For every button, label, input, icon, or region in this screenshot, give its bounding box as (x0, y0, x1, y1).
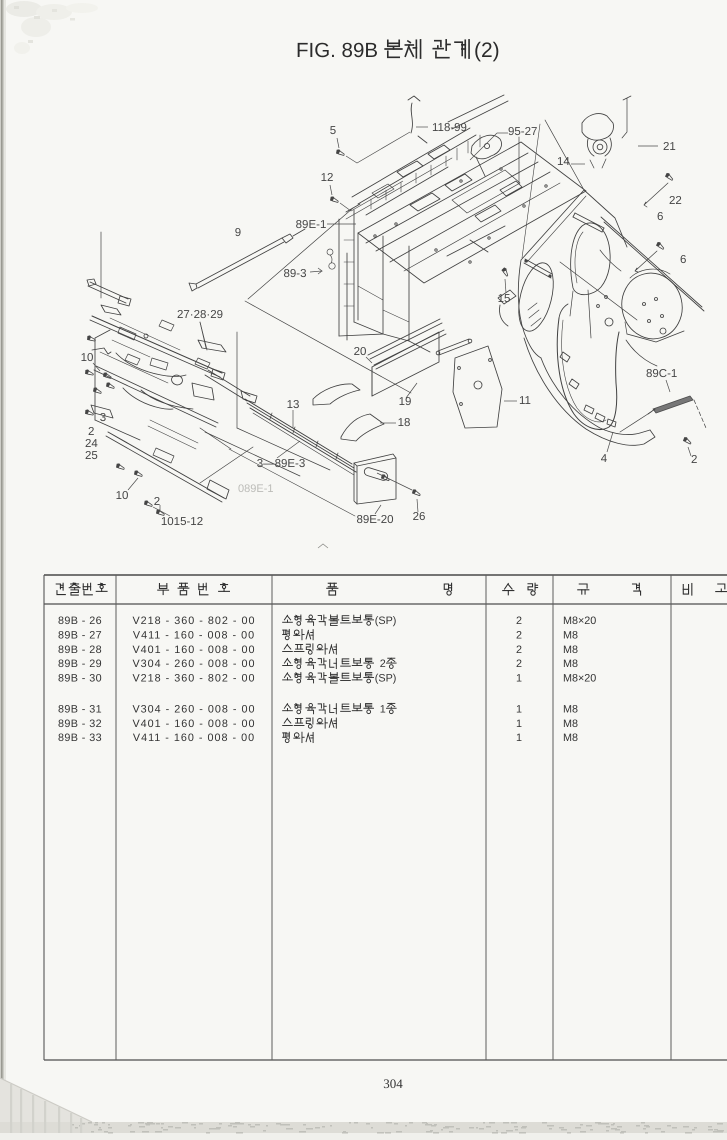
svg-text:10: 10 (116, 490, 129, 502)
svg-text:M8×20: M8×20 (563, 673, 596, 685)
svg-text:2: 2 (516, 658, 522, 670)
svg-text:89C-1: 89C-1 (646, 368, 677, 380)
svg-text:089E-1: 089E-1 (238, 483, 273, 495)
svg-text:13: 13 (287, 399, 300, 411)
svg-text:15: 15 (498, 293, 511, 305)
svg-text:M8: M8 (563, 703, 578, 715)
svg-text:1: 1 (380, 703, 386, 715)
svg-text:2: 2 (516, 644, 522, 656)
svg-text:1: 1 (516, 732, 522, 744)
svg-text:89B - 29: 89B - 29 (58, 658, 102, 670)
svg-text:2: 2 (691, 454, 697, 466)
svg-text:M8×20: M8×20 (563, 615, 596, 627)
svg-text:6: 6 (657, 211, 663, 223)
svg-text:4: 4 (601, 453, 608, 465)
svg-text:89B - 28: 89B - 28 (58, 644, 102, 656)
svg-text:12: 12 (321, 172, 334, 184)
svg-text:20: 20 (354, 346, 367, 358)
svg-text:89B - 27: 89B - 27 (58, 629, 102, 641)
svg-text:19: 19 (399, 396, 412, 408)
svg-text:89B - 26: 89B - 26 (58, 615, 102, 627)
svg-text:18: 18 (398, 417, 411, 429)
svg-text:V411 - 160 - 008 - 00: V411 - 160 - 008 - 00 (133, 629, 255, 641)
svg-text:(SP): (SP) (375, 615, 397, 627)
svg-text:V401 - 160 - 008 - 00: V401 - 160 - 008 - 00 (132, 718, 255, 730)
svg-text:89B - 30: 89B - 30 (58, 673, 102, 685)
svg-text:1: 1 (516, 703, 522, 715)
svg-text:2: 2 (88, 426, 94, 438)
svg-text:118-99: 118-99 (432, 122, 467, 134)
svg-text:1: 1 (516, 718, 522, 730)
svg-text:3: 3 (100, 412, 106, 424)
svg-text:24: 24 (85, 438, 98, 450)
svg-text:V218 - 360 - 802 - 00: V218 - 360 - 802 - 00 (132, 673, 255, 685)
svg-text:1015-12: 1015-12 (161, 516, 203, 528)
svg-text:27·28·29: 27·28·29 (177, 309, 223, 321)
svg-text:M8: M8 (563, 644, 578, 656)
svg-text:(2): (2) (474, 39, 500, 62)
svg-text:89E-1: 89E-1 (296, 219, 327, 231)
svg-text:3—89E-3: 3—89E-3 (257, 458, 306, 470)
svg-text:M8: M8 (563, 658, 578, 670)
svg-text:(SP): (SP) (375, 673, 397, 685)
svg-text:22: 22 (669, 195, 682, 207)
svg-text:V401 - 160 - 008 - 00: V401 - 160 - 008 - 00 (132, 644, 255, 656)
svg-text:M8: M8 (563, 629, 578, 641)
svg-text:2: 2 (516, 629, 522, 641)
svg-text:V304 - 260 - 008 - 00: V304 - 260 - 008 - 00 (132, 703, 255, 715)
svg-text:21: 21 (663, 141, 676, 153)
svg-text:89B - 32: 89B - 32 (58, 718, 102, 730)
svg-text:2: 2 (380, 658, 386, 670)
svg-text:FIG. 89B: FIG. 89B (296, 39, 378, 62)
svg-text:304: 304 (383, 1076, 403, 1091)
svg-text:26: 26 (413, 511, 426, 523)
svg-text:89-3: 89-3 (283, 268, 306, 280)
svg-text:2: 2 (154, 496, 160, 508)
svg-text:11: 11 (519, 395, 531, 407)
svg-text:89B - 33: 89B - 33 (58, 732, 102, 744)
svg-text:89B - 31: 89B - 31 (58, 703, 102, 715)
svg-text:95-27: 95-27 (508, 126, 537, 138)
svg-text:M8: M8 (563, 732, 578, 744)
svg-text:1: 1 (516, 673, 522, 685)
svg-text:5: 5 (330, 125, 336, 137)
svg-text:V218 - 360 - 802 - 00: V218 - 360 - 802 - 00 (132, 615, 255, 627)
svg-text:14: 14 (557, 156, 570, 168)
svg-text:89E-20: 89E-20 (356, 514, 393, 526)
svg-text:10: 10 (81, 352, 94, 364)
svg-text:25: 25 (85, 450, 98, 462)
svg-text:V411 - 160 - 008 - 00: V411 - 160 - 008 - 00 (133, 732, 255, 744)
svg-text:V304 - 260 - 008 - 00: V304 - 260 - 008 - 00 (132, 658, 255, 670)
svg-text:M8: M8 (563, 718, 578, 730)
svg-text:6: 6 (680, 254, 686, 266)
svg-text:9: 9 (235, 227, 241, 239)
svg-text:2: 2 (516, 615, 522, 627)
